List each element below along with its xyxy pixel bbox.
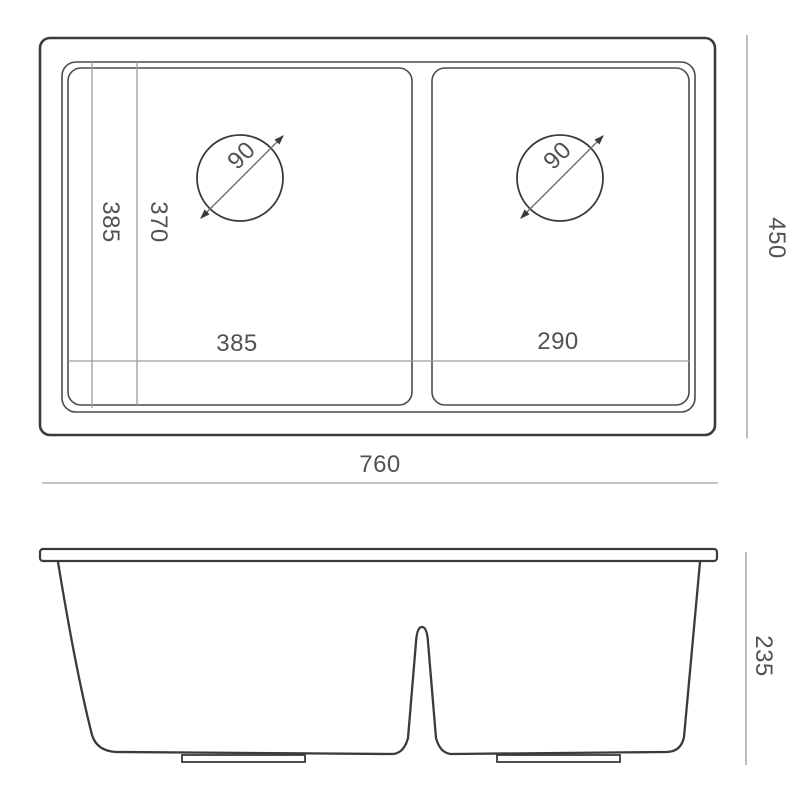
sink-body-profile: [58, 562, 700, 754]
left-drain-recess: [182, 755, 305, 762]
sink-flange-profile: [40, 549, 717, 561]
dim-label-290-right-bowl-width: 290: [537, 330, 579, 354]
dim-label-450-overall-depth: 450: [764, 217, 788, 259]
right-drain-recess: [497, 755, 620, 762]
top-view: [40, 35, 747, 483]
dim-label-385-vertical: 385: [98, 201, 122, 243]
dim-label-370-vertical: 370: [146, 201, 170, 243]
top-view-dimension-lines: [42, 35, 747, 483]
sink-outer-edge: [40, 38, 715, 435]
dim-label-385-left-bowl-width: 385: [216, 332, 258, 356]
sink-dimension-drawing: 385 370 90 90 385 290 450 760 235: [0, 0, 800, 794]
dim-label-760-overall-width: 760: [359, 453, 401, 477]
dim-label-235-bowl-depth: 235: [751, 635, 775, 677]
side-view: [40, 549, 746, 765]
sink-drawing-linework: [0, 0, 800, 794]
